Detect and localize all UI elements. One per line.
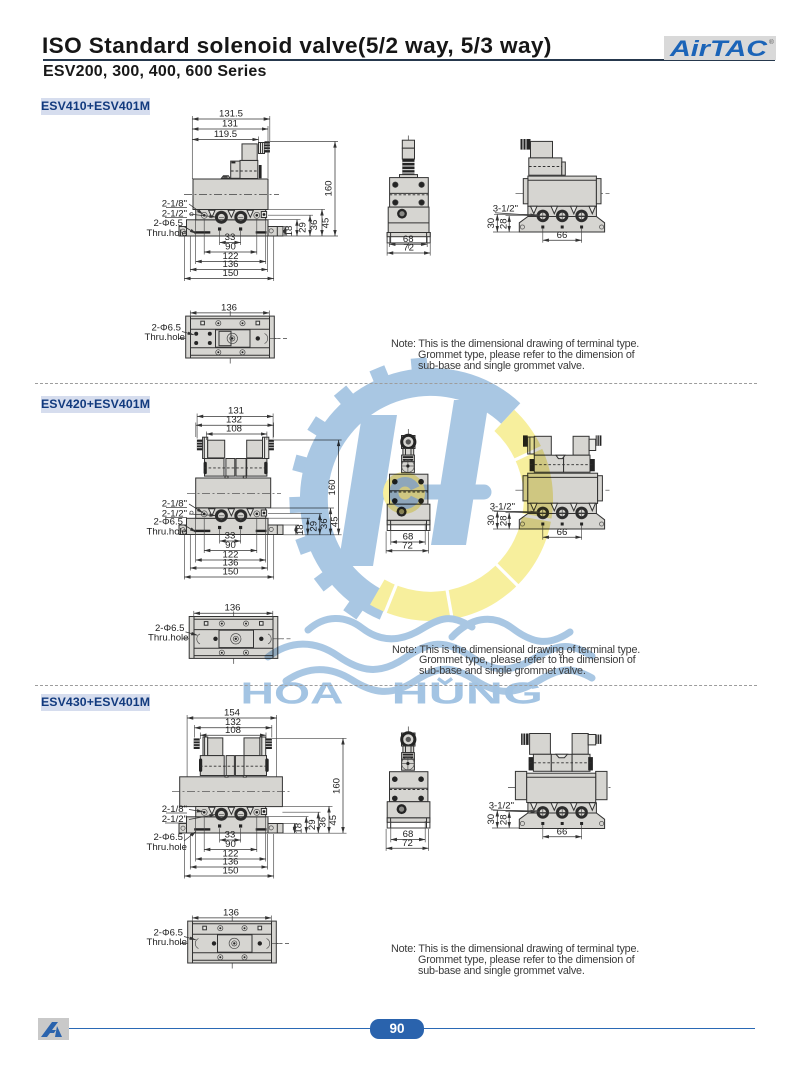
svg-text:Thru.hole: Thru.hole — [146, 937, 187, 948]
svg-text:160: 160 — [332, 778, 343, 794]
svg-text:108: 108 — [225, 725, 241, 736]
svg-text:Thru.hole: Thru.hole — [146, 527, 187, 538]
svg-text:150: 150 — [222, 567, 238, 578]
svg-text:Thru.hole: Thru.hole — [146, 228, 187, 239]
svg-text:Thru.hole: Thru.hole — [148, 632, 189, 643]
svg-text:136: 136 — [223, 907, 239, 918]
svg-text:108: 108 — [226, 423, 242, 434]
svg-text:119.5: 119.5 — [214, 129, 237, 140]
svg-text:2-1/2": 2-1/2" — [162, 814, 187, 825]
svg-text:150: 150 — [222, 866, 238, 877]
svg-text:Thru.hole: Thru.hole — [144, 332, 185, 343]
svg-text:28: 28 — [498, 515, 509, 526]
svg-text:72: 72 — [402, 541, 413, 552]
svg-text:36: 36 — [309, 220, 320, 231]
svg-text:131: 131 — [222, 118, 238, 129]
svg-text:18: 18 — [293, 823, 304, 834]
svg-text:72: 72 — [402, 838, 413, 849]
svg-text:29: 29 — [298, 222, 309, 233]
svg-text:66: 66 — [557, 230, 568, 241]
svg-text:45: 45 — [328, 815, 339, 826]
svg-text:66: 66 — [557, 527, 568, 538]
svg-text:150: 150 — [222, 268, 238, 279]
svg-text:18: 18 — [284, 226, 295, 237]
svg-text:HUNG: HUNG — [392, 676, 544, 711]
svg-text:136: 136 — [224, 603, 240, 614]
svg-text:66: 66 — [557, 826, 568, 837]
svg-text:HOA: HOA — [241, 676, 344, 711]
svg-text:28: 28 — [498, 814, 509, 825]
svg-text:36: 36 — [317, 817, 328, 828]
svg-text:28: 28 — [498, 218, 509, 229]
svg-text:136: 136 — [221, 302, 237, 313]
svg-text:30: 30 — [486, 218, 497, 229]
svg-text:45: 45 — [321, 218, 332, 229]
svg-text:160: 160 — [324, 180, 335, 196]
svg-text:Thru.hole: Thru.hole — [146, 842, 187, 853]
svg-text:30: 30 — [486, 515, 497, 526]
svg-text:30: 30 — [486, 814, 497, 825]
svg-text:72: 72 — [403, 243, 414, 254]
